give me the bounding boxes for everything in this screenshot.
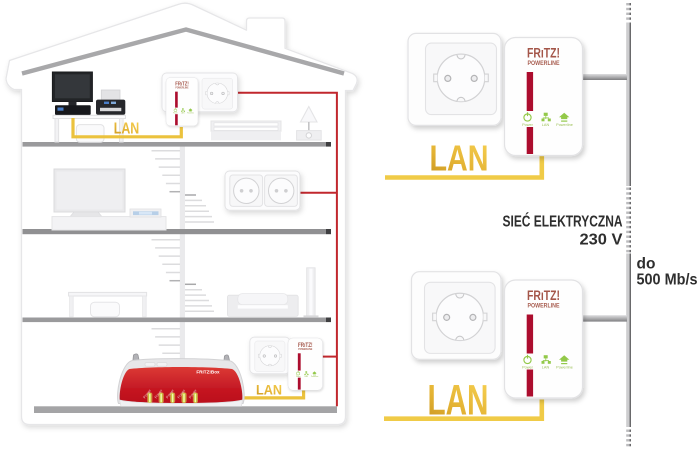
svg-text:do: do xyxy=(637,255,656,272)
svg-text:LAN: LAN xyxy=(114,120,140,137)
svg-text:FRITZ!Box: FRITZ!Box xyxy=(196,369,220,374)
svg-text:500 Mb/s: 500 Mb/s xyxy=(637,271,698,288)
svg-text:LAN: LAN xyxy=(430,138,489,179)
svg-text:230 V: 230 V xyxy=(580,231,624,248)
svg-text:SIEĆ ELEKTRYCZNA: SIEĆ ELEKTRYCZNA xyxy=(503,212,623,230)
svg-text:LAN: LAN xyxy=(256,382,282,398)
svg-text:LAN: LAN xyxy=(428,378,489,425)
